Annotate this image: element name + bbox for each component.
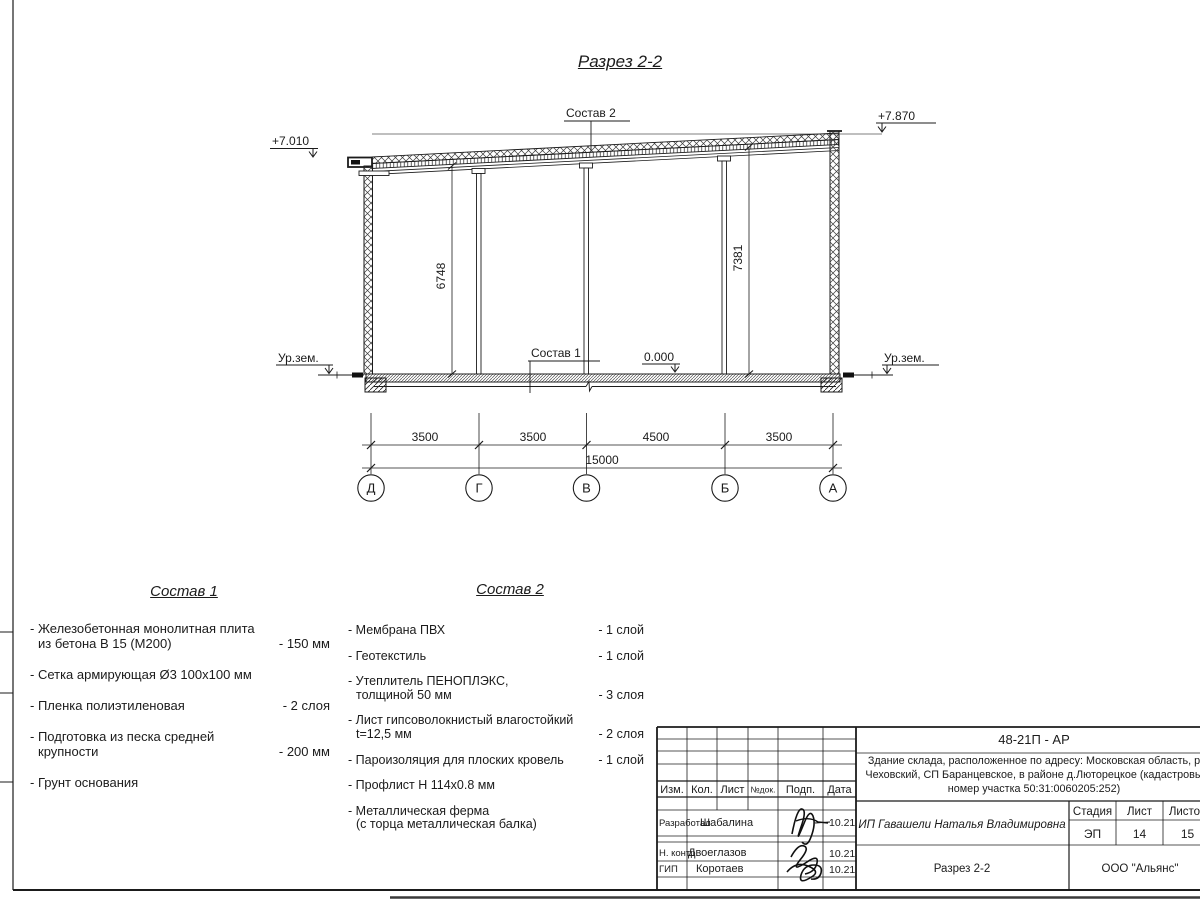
tb-stage-value: ЭП <box>1084 827 1101 841</box>
tb-header-podp: Подп. <box>786 784 815 796</box>
zero-level-label: 0.000 <box>644 350 674 364</box>
dim-3500-2: 3500 <box>520 430 547 444</box>
tb-name-developer: Шабалина <box>700 817 754 829</box>
height-dimensions <box>448 144 753 378</box>
list-item: - Мембрана ПВХ - 1 слой <box>348 624 644 638</box>
column <box>722 161 727 374</box>
tb-header-kol: Кол. <box>691 784 713 796</box>
tb-doc-title: Разрез 2-2 <box>934 863 990 875</box>
elevation-right-label: +7.870 <box>878 109 915 123</box>
column-capital <box>718 156 731 161</box>
tb-header-ndok: №док. <box>751 785 776 795</box>
list-item: - Сетка армирующая Ø3 100х100 мм <box>30 667 330 682</box>
roof-assembly <box>348 133 882 175</box>
tb-header-list: Лист <box>721 784 745 796</box>
ground-level-right-label: Ур.зем. <box>884 351 925 365</box>
level-mark-ground-left <box>276 365 333 374</box>
dim-4500: 4500 <box>643 430 670 444</box>
list-item: - Пароизоляция для плоских кровель - 1 с… <box>348 754 644 768</box>
walls <box>359 131 842 374</box>
height-dim-left: 6748 <box>434 262 448 289</box>
list-item: - Лист гипсоволокнистый влагостойкий t=1… <box>348 714 644 741</box>
signatures <box>787 809 830 881</box>
tb-client: ИП Гавашели Наталья Владимировна <box>858 819 1065 831</box>
drawing-sheet: Состав 2 Состав 1 +7.010 +7.870 Ур.зем. … <box>0 0 1200 900</box>
tb-sheet-header: Лист <box>1127 806 1153 818</box>
floor-slab <box>366 374 840 382</box>
sostav1-callout-label: Состав 1 <box>531 346 581 360</box>
foundation-right <box>821 378 842 392</box>
list-item: - Металлическая ферма (с торца металличе… <box>348 805 644 832</box>
list-item: - Утеплитель ПЕНОПЛЭКС, толщиной 50 мм -… <box>348 675 644 702</box>
level-mark-7010 <box>270 149 318 158</box>
list-item: - Геотекстиль - 1 слой <box>348 650 644 664</box>
column <box>584 168 589 374</box>
column-capital <box>472 169 485 174</box>
tb-name-gip: Коротаев <box>696 863 744 875</box>
foundation-left <box>365 378 386 392</box>
list-item: - Подготовка из песка средней крупности … <box>30 729 330 759</box>
axis-label-b: Б <box>721 481 730 496</box>
list-item: - Грунт основания <box>30 775 330 790</box>
level-mark-7870 <box>876 123 936 132</box>
tb-sheets-header: Листов <box>1169 806 1200 818</box>
tb-sheets-value: 15 <box>1181 827 1195 841</box>
elevation-left-label: +7.010 <box>272 134 309 148</box>
sostav2-heading: Состав 2 <box>444 581 576 598</box>
dim-3500-3: 3500 <box>766 430 793 444</box>
sostav1-list: - Железобетонная монолитная плита из бет… <box>30 621 330 806</box>
title-block-texts: Изм. Кол. Лист №док. Подп. Дата Разработ… <box>659 732 1200 876</box>
dim-total: 15000 <box>585 453 619 467</box>
tb-description-line3: номер участка 50:31:0060205:252) <box>948 783 1120 795</box>
axis-label-a: А <box>829 481 838 496</box>
tb-description-line1: Здание склада, расположенное по адресу: … <box>868 755 1200 767</box>
level-mark-ground-right <box>882 365 939 374</box>
axis-label-v: В <box>582 481 591 496</box>
tb-date-gip: 10.21 <box>829 864 855 876</box>
page-title: Разрез 2-2 <box>520 52 720 72</box>
axis-label-g: Г <box>475 481 482 496</box>
sostav1-heading: Состав 1 <box>118 583 250 600</box>
signature-developer <box>792 809 814 844</box>
columns <box>472 156 731 374</box>
list-item: - Профлист Н 114х0.8 мм <box>348 779 644 793</box>
tb-project-code: 48-21П - АР <box>998 732 1070 747</box>
height-dim-right: 7381 <box>731 244 745 271</box>
tb-company: ООО "Альянс" <box>1102 863 1179 875</box>
level-mark-zero <box>642 364 680 372</box>
floor-and-ground <box>318 372 893 393</box>
sostav2-callout-label: Состав 2 <box>566 106 616 120</box>
tb-header-izm: Изм. <box>660 784 684 796</box>
edge-beam-core <box>351 160 360 165</box>
tb-stage-header: Стадия <box>1073 806 1112 818</box>
left-wall <box>364 166 373 374</box>
column <box>477 174 482 375</box>
tb-description-line2: Чеховский, СП Баранцевское, в районе д.Л… <box>865 769 1200 781</box>
sostav2-list: - Мембрана ПВХ - 1 слой - Геотекстиль - … <box>348 624 644 844</box>
tb-role-gip: ГИП <box>659 864 678 875</box>
tb-name-ncontrol: Двоеглазов <box>688 847 747 859</box>
axis-bubbles <box>358 475 846 501</box>
dim-3500-1: 3500 <box>412 430 439 444</box>
left-wall-cap <box>359 171 389 176</box>
tb-date-developer: 10.21 <box>829 817 855 829</box>
column-capital <box>580 163 593 168</box>
tb-sheet-value: 14 <box>1133 827 1147 841</box>
ground-level-left-label: Ур.зем. <box>278 351 319 365</box>
tb-date-ncontrol: 10.21 <box>829 848 855 860</box>
right-wall <box>830 131 839 374</box>
axis-label-d: Д <box>367 481 376 496</box>
tb-header-data: Дата <box>827 784 852 796</box>
break-symbol <box>586 382 592 392</box>
list-item: - Пленка полиэтиленовая - 2 слоя <box>30 698 330 713</box>
list-item: - Железобетонная монолитная плита из бет… <box>30 621 330 651</box>
